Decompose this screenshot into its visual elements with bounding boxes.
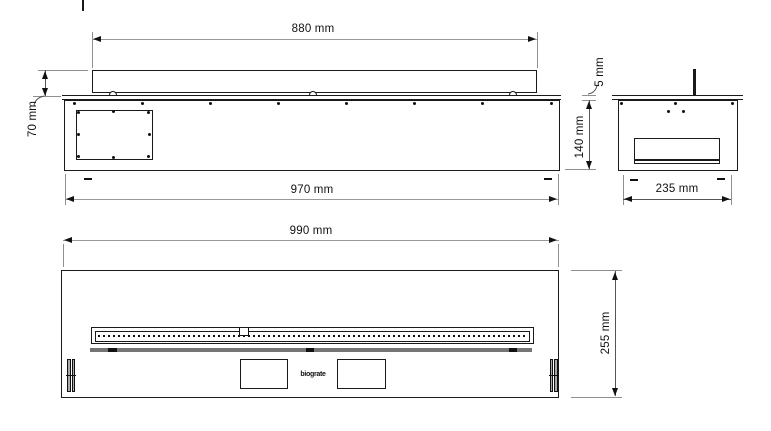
extension-line (731, 175, 732, 205)
dimension-arrow (612, 272, 618, 280)
screw-dot (77, 155, 80, 158)
dimension-line (623, 199, 731, 200)
extension-line (558, 174, 559, 205)
screw-dot (148, 133, 151, 136)
dimension-line (63, 240, 559, 242)
dimension-arrow (549, 196, 557, 202)
dimension-arrow (586, 101, 592, 109)
antenna-side-line (82, 0, 84, 11)
screw-dot (209, 102, 212, 105)
dimension-arrow (66, 196, 74, 202)
left-grille-bar (67, 359, 71, 392)
brand-logo-text: biograte (293, 371, 333, 378)
dimension-arrow (64, 237, 72, 243)
dimension-line (589, 100, 590, 169)
dimension-line (615, 271, 616, 396)
control-hatch-right (337, 359, 386, 389)
extension-line (537, 32, 538, 68)
screw-dot (481, 102, 484, 105)
left-grille-bar (72, 359, 76, 392)
dimension-label-70: 70 mm (27, 96, 39, 142)
screw-dot (147, 155, 150, 158)
dimension-label-255: 255 mm (600, 307, 612, 359)
dimension-line (92, 39, 537, 41)
screw-dot (77, 133, 80, 136)
screw-dot (147, 111, 150, 114)
extension-line (565, 169, 596, 170)
right-grille-bar (550, 359, 554, 392)
dimension-label-990: 990 mm (271, 225, 351, 237)
grille-divider (66, 375, 76, 376)
screw-dot (73, 102, 76, 105)
extension-line (571, 397, 622, 398)
dimension-arrow (722, 196, 730, 202)
dimension-arrow (528, 36, 536, 42)
foot-mark (544, 178, 552, 180)
right-grille-bar (554, 359, 558, 392)
grille-divider (549, 375, 559, 376)
screw-dot (550, 102, 553, 105)
screw-dot (674, 102, 677, 105)
screw-dot (731, 102, 734, 105)
access-panel-outline (76, 110, 153, 160)
fuel-tank-opening (634, 138, 720, 160)
technical-drawing-canvas: 880 mm 970 mm 70 mm (0, 0, 771, 431)
dimension-arrow (549, 237, 557, 243)
dimension-arrow (42, 71, 48, 79)
opening-lip (634, 160, 720, 164)
foot-mark (717, 178, 725, 180)
extension-line (63, 244, 64, 267)
screw-dot (277, 102, 280, 105)
burner-hole-row (98, 335, 527, 338)
antenna-end (693, 69, 696, 96)
foot-mark (630, 179, 638, 181)
screw-dot (345, 102, 348, 105)
slider-mark (108, 348, 117, 352)
screw-dot (141, 102, 144, 105)
screw-dot (112, 110, 115, 113)
dimension-label-880: 880 mm (273, 23, 353, 35)
foot-mark (84, 178, 92, 180)
screw-dot (77, 111, 80, 114)
slider-mark (509, 348, 517, 352)
slider-mark (306, 348, 314, 352)
extension-line (558, 244, 559, 267)
dimension-label-970: 970 mm (272, 184, 352, 196)
screw-dot (667, 110, 670, 113)
dimension-arrow (93, 36, 101, 42)
screw-dot (682, 110, 685, 113)
dimension-label-140: 140 mm (574, 111, 586, 163)
screw-dot (112, 156, 115, 159)
dimension-arrow (612, 388, 618, 396)
screw-dot (620, 102, 623, 105)
strip-center-tab (239, 328, 249, 337)
dimension-label-235: 235 mm (637, 183, 717, 195)
dimension-arrow (624, 196, 632, 202)
dimension-line (65, 199, 558, 201)
control-hatch-left (240, 359, 288, 389)
burner-insert-outline (92, 70, 537, 93)
screw-dot (413, 102, 416, 105)
dimension-label-5: 5 mm (594, 54, 606, 90)
dimension-arrow (586, 161, 592, 169)
